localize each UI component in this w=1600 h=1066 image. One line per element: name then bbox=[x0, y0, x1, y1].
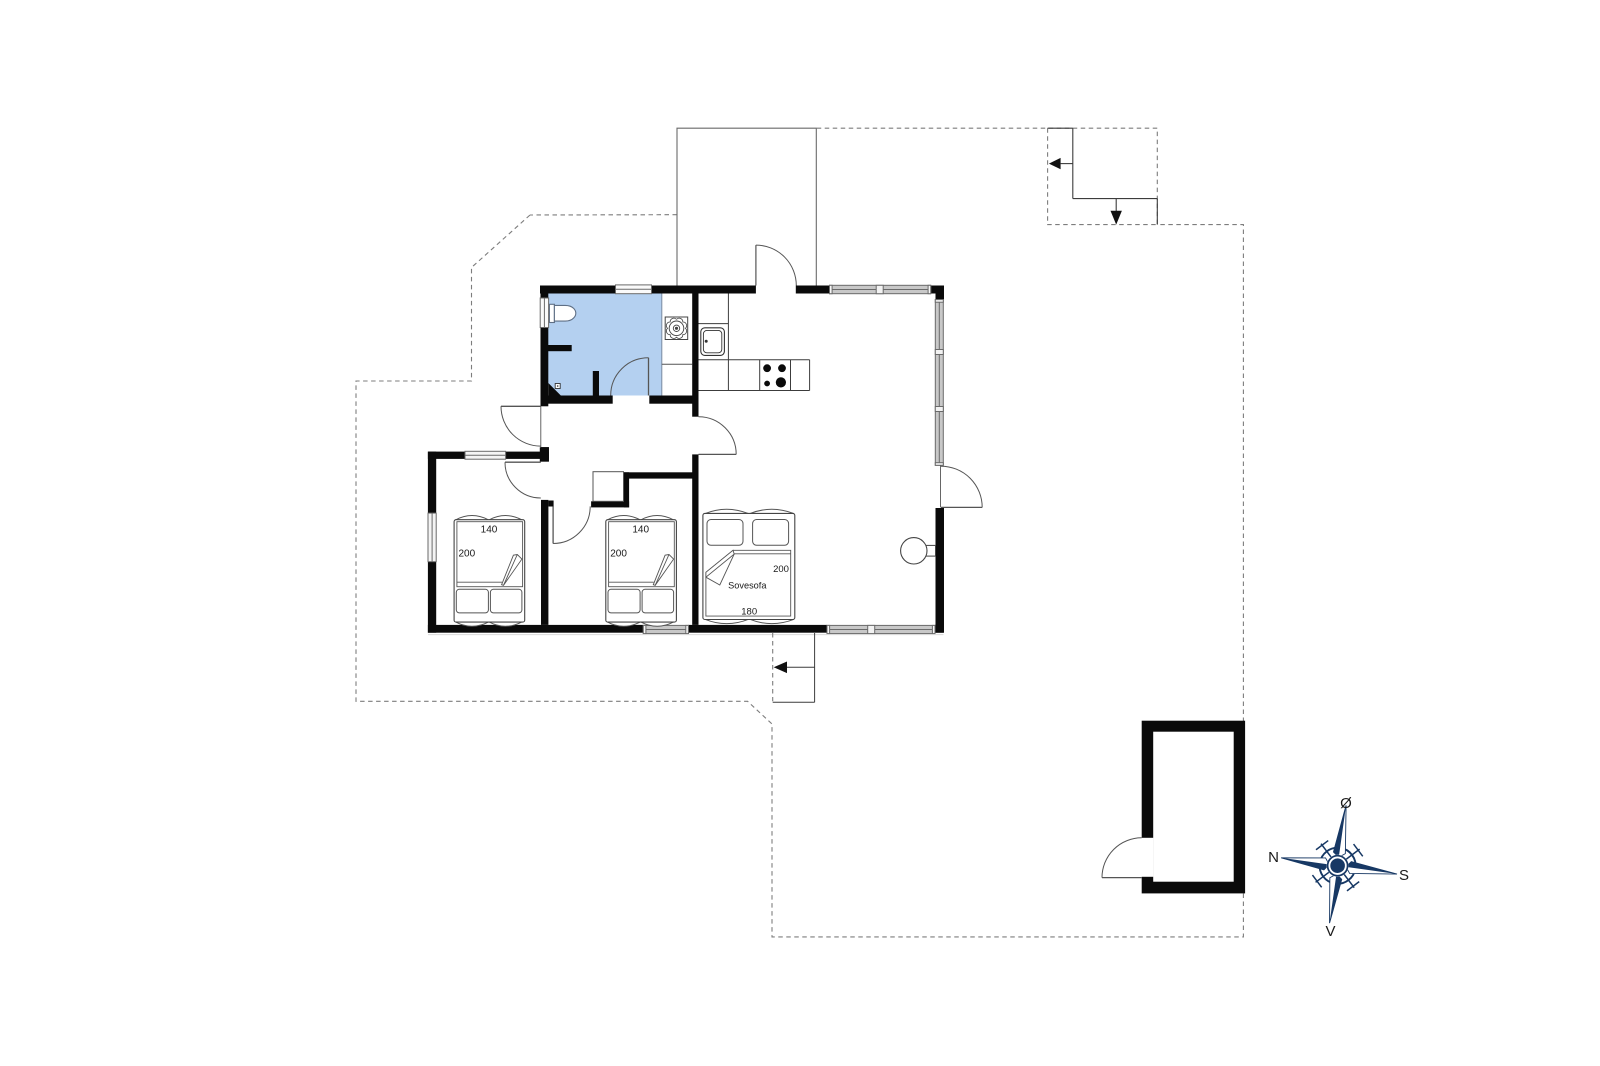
svg-text:140: 140 bbox=[632, 524, 649, 535]
svg-text:S: S bbox=[1399, 867, 1409, 884]
svg-text:180: 180 bbox=[741, 607, 757, 618]
svg-text:Ø: Ø bbox=[1340, 795, 1352, 812]
svg-text:N: N bbox=[1268, 849, 1279, 866]
svg-text:V: V bbox=[1325, 923, 1335, 940]
svg-text:200: 200 bbox=[459, 548, 476, 559]
svg-text:200: 200 bbox=[610, 548, 627, 559]
svg-text:200: 200 bbox=[773, 564, 789, 575]
svg-text:Sovesofa: Sovesofa bbox=[728, 581, 767, 591]
svg-text:140: 140 bbox=[481, 524, 498, 535]
